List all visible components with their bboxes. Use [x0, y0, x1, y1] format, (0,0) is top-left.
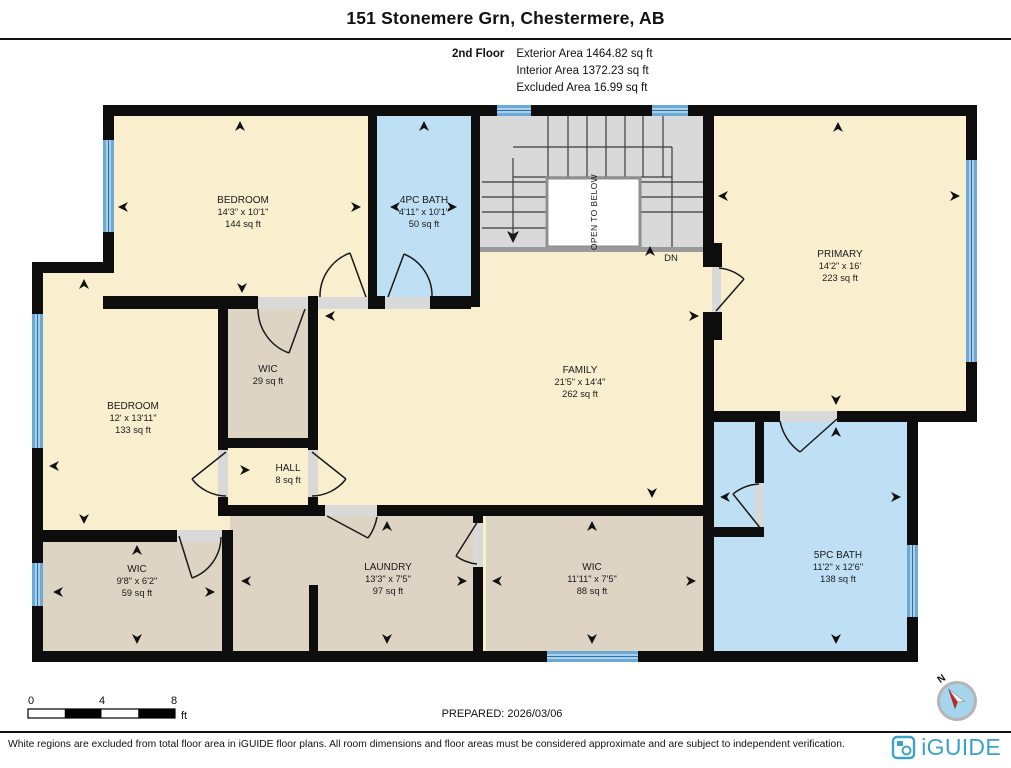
svg-text:29 sq ft: 29 sq ft	[253, 376, 284, 386]
svg-text:LAUNDRY: LAUNDRY	[364, 562, 412, 573]
svg-text:138 sq ft: 138 sq ft	[820, 574, 856, 584]
room-label-5pc-bath: 5PC BATH11'2" x 12'6"138 sq ft	[813, 550, 863, 584]
room-wic-88	[486, 516, 703, 653]
svg-text:11'2" x 12'6": 11'2" x 12'6"	[813, 562, 863, 572]
stairs-dn-label: DN	[664, 253, 678, 264]
footer-divider	[0, 731, 1011, 733]
svg-text:PRIMARY: PRIMARY	[817, 249, 863, 260]
svg-text:50 sq ft: 50 sq ft	[409, 219, 440, 229]
room-4pc-bath	[372, 110, 475, 302]
svg-text:WIC: WIC	[127, 564, 146, 575]
svg-text:14'2" x 16': 14'2" x 16'	[819, 261, 862, 271]
svg-text:BEDROOM: BEDROOM	[107, 401, 159, 412]
svg-text:5PC BATH: 5PC BATH	[814, 550, 862, 561]
room-laundry	[230, 516, 476, 653]
svg-text:144 sq ft: 144 sq ft	[225, 219, 261, 229]
iguide-logo-icon	[891, 735, 916, 760]
svg-text:FAMILY: FAMILY	[563, 365, 598, 376]
svg-text:9'8" x 6'2": 9'8" x 6'2"	[117, 576, 158, 586]
svg-text:8 sq ft: 8 sq ft	[275, 475, 301, 485]
window	[32, 314, 43, 448]
scale-tick-4: 4	[99, 695, 105, 707]
svg-text:97 sq ft: 97 sq ft	[373, 586, 404, 596]
window	[497, 105, 531, 116]
compass-north-label: N	[936, 673, 948, 686]
window	[966, 160, 977, 362]
scale-bar: 0 4 8 ft	[28, 695, 187, 722]
iguide-logo-text: iGUIDE	[921, 734, 1001, 761]
svg-text:223 sq ft: 223 sq ft	[822, 273, 858, 283]
svg-text:13'3" x 7'5": 13'3" x 7'5"	[365, 574, 411, 584]
compass-icon: N	[923, 664, 982, 727]
svg-text:21'5" x 14'4": 21'5" x 14'4"	[555, 377, 606, 387]
svg-text:59 sq ft: 59 sq ft	[122, 588, 153, 598]
open-to-below-label: OPEN TO BELOW	[589, 174, 599, 250]
svg-text:WIC: WIC	[582, 562, 601, 573]
floor-plan-page: 151 Stonemere Grn, Chestermere, AB 2nd F…	[0, 0, 1011, 768]
window	[103, 140, 114, 232]
svg-text:14'3" x 10'1": 14'3" x 10'1"	[218, 207, 269, 217]
window	[32, 563, 43, 606]
svg-text:88 sq ft: 88 sq ft	[577, 586, 608, 596]
svg-text:HALL: HALL	[275, 463, 300, 474]
svg-text:133 sq ft: 133 sq ft	[115, 425, 151, 435]
scale-tick-8: 8	[171, 695, 177, 707]
footer-disclaimer: White regions are excluded from total fl…	[8, 739, 845, 750]
svg-text:11'11" x 7'5": 11'11" x 7'5"	[567, 574, 617, 584]
svg-text:12' x 13'11": 12' x 13'11"	[110, 413, 157, 423]
svg-text:4PC BATH: 4PC BATH	[400, 195, 448, 206]
window	[652, 105, 688, 116]
scale-tick-0: 0	[28, 695, 34, 707]
iguide-logo: iGUIDE	[891, 734, 1001, 761]
svg-text:WIC: WIC	[258, 364, 277, 375]
floor-plan-drawing: OPEN TO BELOW DN	[0, 0, 1011, 768]
window	[907, 545, 918, 617]
scale-unit: ft	[181, 710, 187, 722]
svg-text:4'11" x 10'1": 4'11" x 10'1"	[399, 207, 449, 217]
window	[547, 651, 638, 662]
prepared-date: PREPARED: 2026/03/06	[442, 708, 563, 720]
room-label-primary: PRIMARY14'2" x 16'223 sq ft	[817, 249, 863, 283]
svg-text:262 sq ft: 262 sq ft	[562, 389, 598, 399]
svg-text:BEDROOM: BEDROOM	[217, 195, 269, 206]
